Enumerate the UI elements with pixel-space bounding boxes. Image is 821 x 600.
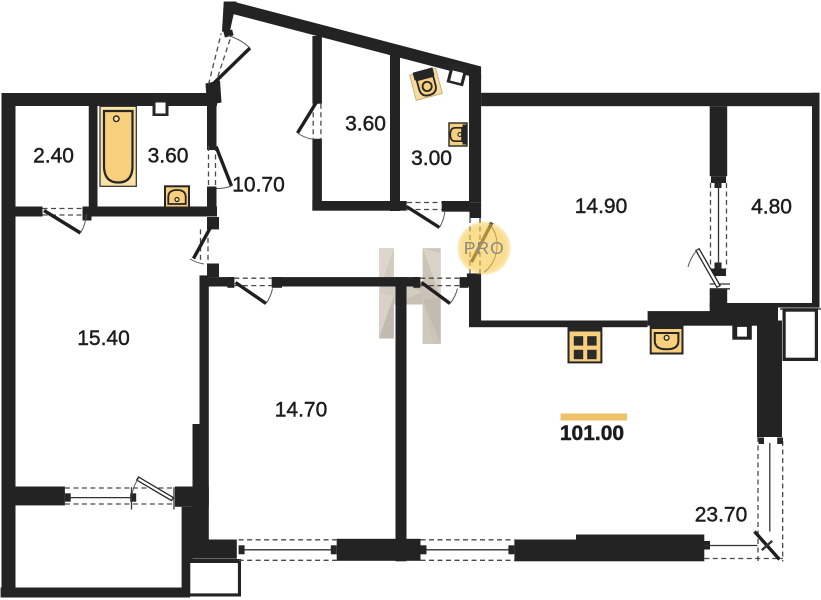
svg-text:2.40: 2.40 xyxy=(33,145,74,168)
svg-text:101.00: 101.00 xyxy=(560,422,624,445)
svg-text:15.40: 15.40 xyxy=(77,327,130,350)
svg-text:14.70: 14.70 xyxy=(275,399,328,422)
svg-text:3.60: 3.60 xyxy=(148,145,189,168)
svg-text:10.70: 10.70 xyxy=(232,174,285,197)
svg-text:3.60: 3.60 xyxy=(345,113,386,136)
svg-text:23.70: 23.70 xyxy=(695,504,748,527)
svg-text:4.80: 4.80 xyxy=(751,196,792,219)
svg-text:PRO: PRO xyxy=(464,238,505,258)
svg-text:14.90: 14.90 xyxy=(575,195,628,218)
svg-text:3.00: 3.00 xyxy=(411,147,452,170)
